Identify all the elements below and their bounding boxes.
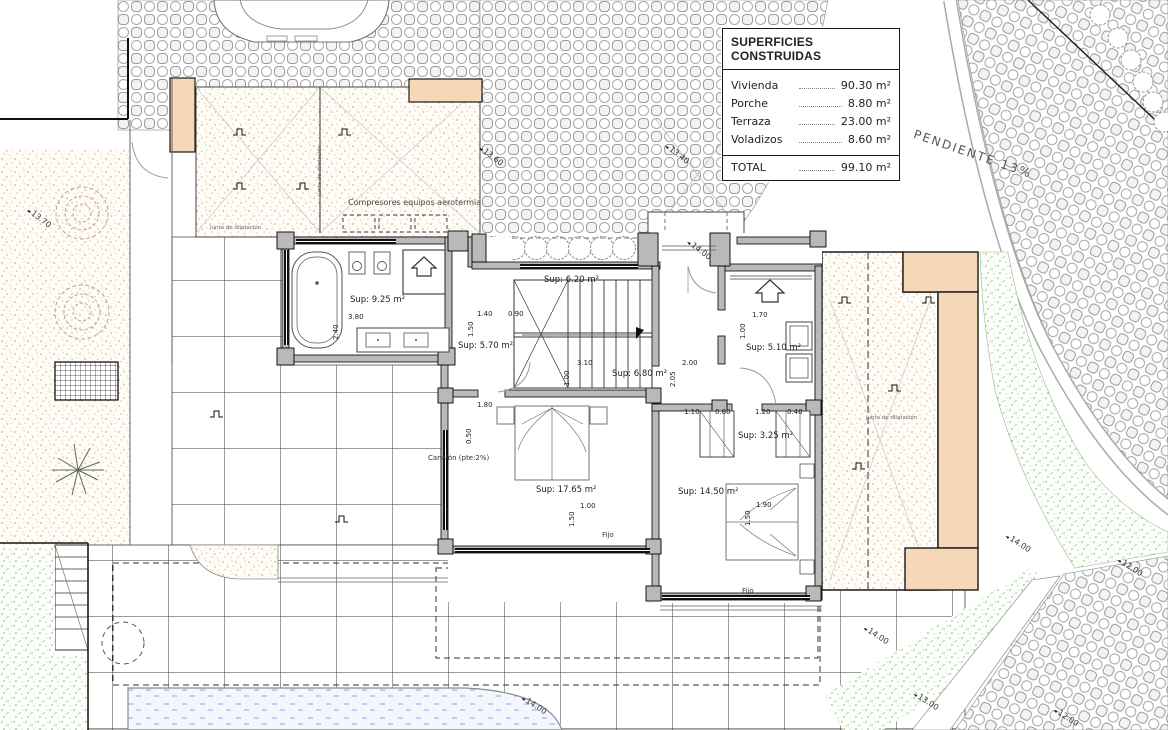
expansion-joint-label: junta de dilatación	[866, 416, 917, 422]
legend-title: SUPERFICIES CONSTRUIDAS	[723, 29, 899, 70]
detail-dim: 2.05	[670, 371, 677, 387]
detail-dim: 2.40	[333, 324, 340, 340]
detail-dim: 1.70	[752, 312, 768, 319]
legend-row-porche: Porche 8.80 m²	[731, 94, 891, 112]
car	[214, 0, 389, 42]
fixed-window-label: Fijo	[602, 532, 614, 539]
room-area-bedroom1: Sup: 17.65 m²	[536, 486, 596, 495]
detail-dim: 0.50	[466, 428, 473, 444]
legend-total-label: TOTAL	[731, 161, 793, 174]
legend-total-row: TOTAL 99.10 m²	[723, 155, 899, 180]
detail-dim: 1.50	[569, 511, 576, 527]
detail-dim: 3.10	[577, 360, 593, 367]
detail-dim: 1.00	[580, 503, 596, 510]
vanity	[357, 328, 449, 352]
dotted-leader	[799, 97, 842, 106]
room-area-bedroom2: Sup: 14.50 m²	[678, 488, 738, 497]
detail-dim: 1.40	[477, 311, 493, 318]
legend-value: 8.80 m²	[848, 97, 891, 110]
dotted-leader	[799, 115, 835, 124]
expansion-joint-label: junta de dilatación	[210, 226, 261, 232]
legend-row-terraza: Terraza 23.00 m²	[731, 112, 891, 130]
room-area-corridor: Sup: 6.80 m²	[612, 370, 667, 379]
expansion-joint-label: junta de dilatación	[318, 145, 324, 196]
detail-dim: 0.90	[508, 311, 524, 318]
room-area-closet: Sup: 3.25 m²	[738, 432, 793, 441]
legend-label: Vivienda	[731, 79, 793, 92]
pool	[128, 688, 562, 730]
detail-dim: 3.80	[348, 314, 364, 321]
detail-dim: 1.80	[477, 402, 493, 409]
room-area-hall: Sup: 5.70 m²	[458, 342, 513, 351]
garden-steps	[0, 543, 88, 730]
gutter-label: Canalón (pte:2%)	[428, 455, 489, 462]
detail-dim: 1.00	[740, 323, 747, 339]
legend-label: Porche	[731, 97, 793, 110]
dotted-leader	[799, 162, 835, 171]
detail-dim: 1.20	[755, 409, 771, 416]
legend-value: 90.30 m²	[841, 79, 891, 92]
room-area-bath: Sup: 9.25 m²	[350, 296, 405, 305]
legend-value: 8.60 m²	[848, 133, 891, 146]
fixed-window-label: Fijo	[742, 588, 754, 595]
shower	[403, 250, 445, 294]
room-area-stairs: Sup: 6.20 m²	[544, 276, 599, 285]
aerothermal-label: Compresores equipos aerotermia	[348, 199, 481, 207]
drain-grate	[55, 362, 118, 400]
dotted-leader	[799, 133, 842, 142]
detail-dim: 1.50	[468, 321, 475, 337]
detail-dim: 1.90	[756, 502, 772, 509]
detail-dim: 0.40	[787, 409, 803, 416]
detail-dim: 1.10	[684, 409, 700, 416]
detail-dim: 0.60	[715, 409, 731, 416]
legend-total-value: 99.10 m²	[841, 161, 891, 174]
floor-plan-canvas: SUPERFICIES CONSTRUIDAS Vivienda 90.30 m…	[0, 0, 1168, 730]
legend-label: Voladizos	[731, 133, 793, 146]
gate-arc	[132, 142, 168, 178]
dotted-leader	[799, 79, 835, 88]
room-area-entry: Sup: 5.10 m²	[746, 344, 801, 353]
detail-dim: 1.00	[564, 370, 571, 386]
legend-row-vivienda: Vivienda 90.30 m²	[731, 76, 891, 94]
detail-dim: 1.50	[745, 510, 752, 526]
detail-dim: 2.00	[682, 360, 698, 367]
legend-value: 23.00 m²	[841, 115, 891, 128]
legend-row-voladizos: Voladizos 8.60 m²	[731, 130, 891, 148]
legend-label: Terraza	[731, 115, 793, 128]
areas-legend: SUPERFICIES CONSTRUIDAS Vivienda 90.30 m…	[722, 28, 900, 181]
